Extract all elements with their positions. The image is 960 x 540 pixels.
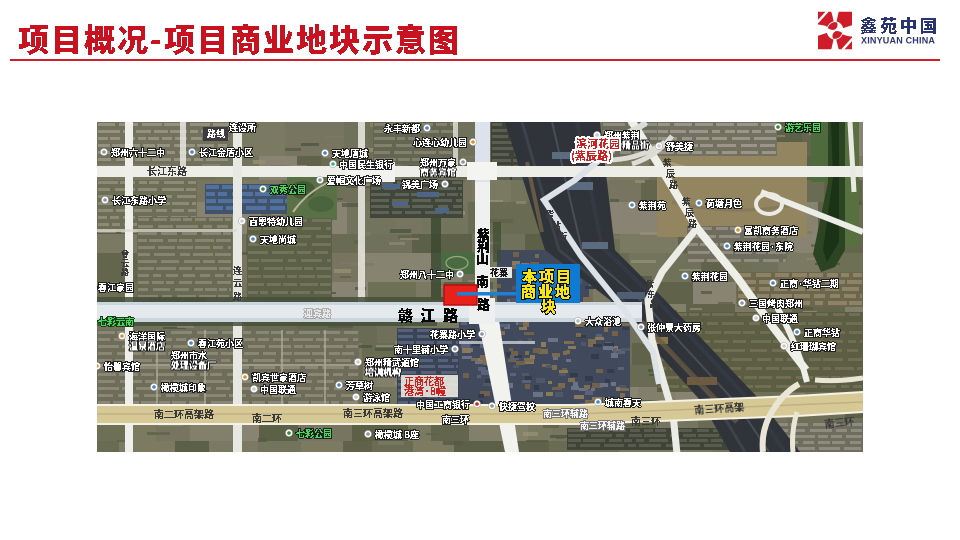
- svg-text:XINYUAN CHINA: XINYUAN CHINA: [861, 36, 935, 46]
